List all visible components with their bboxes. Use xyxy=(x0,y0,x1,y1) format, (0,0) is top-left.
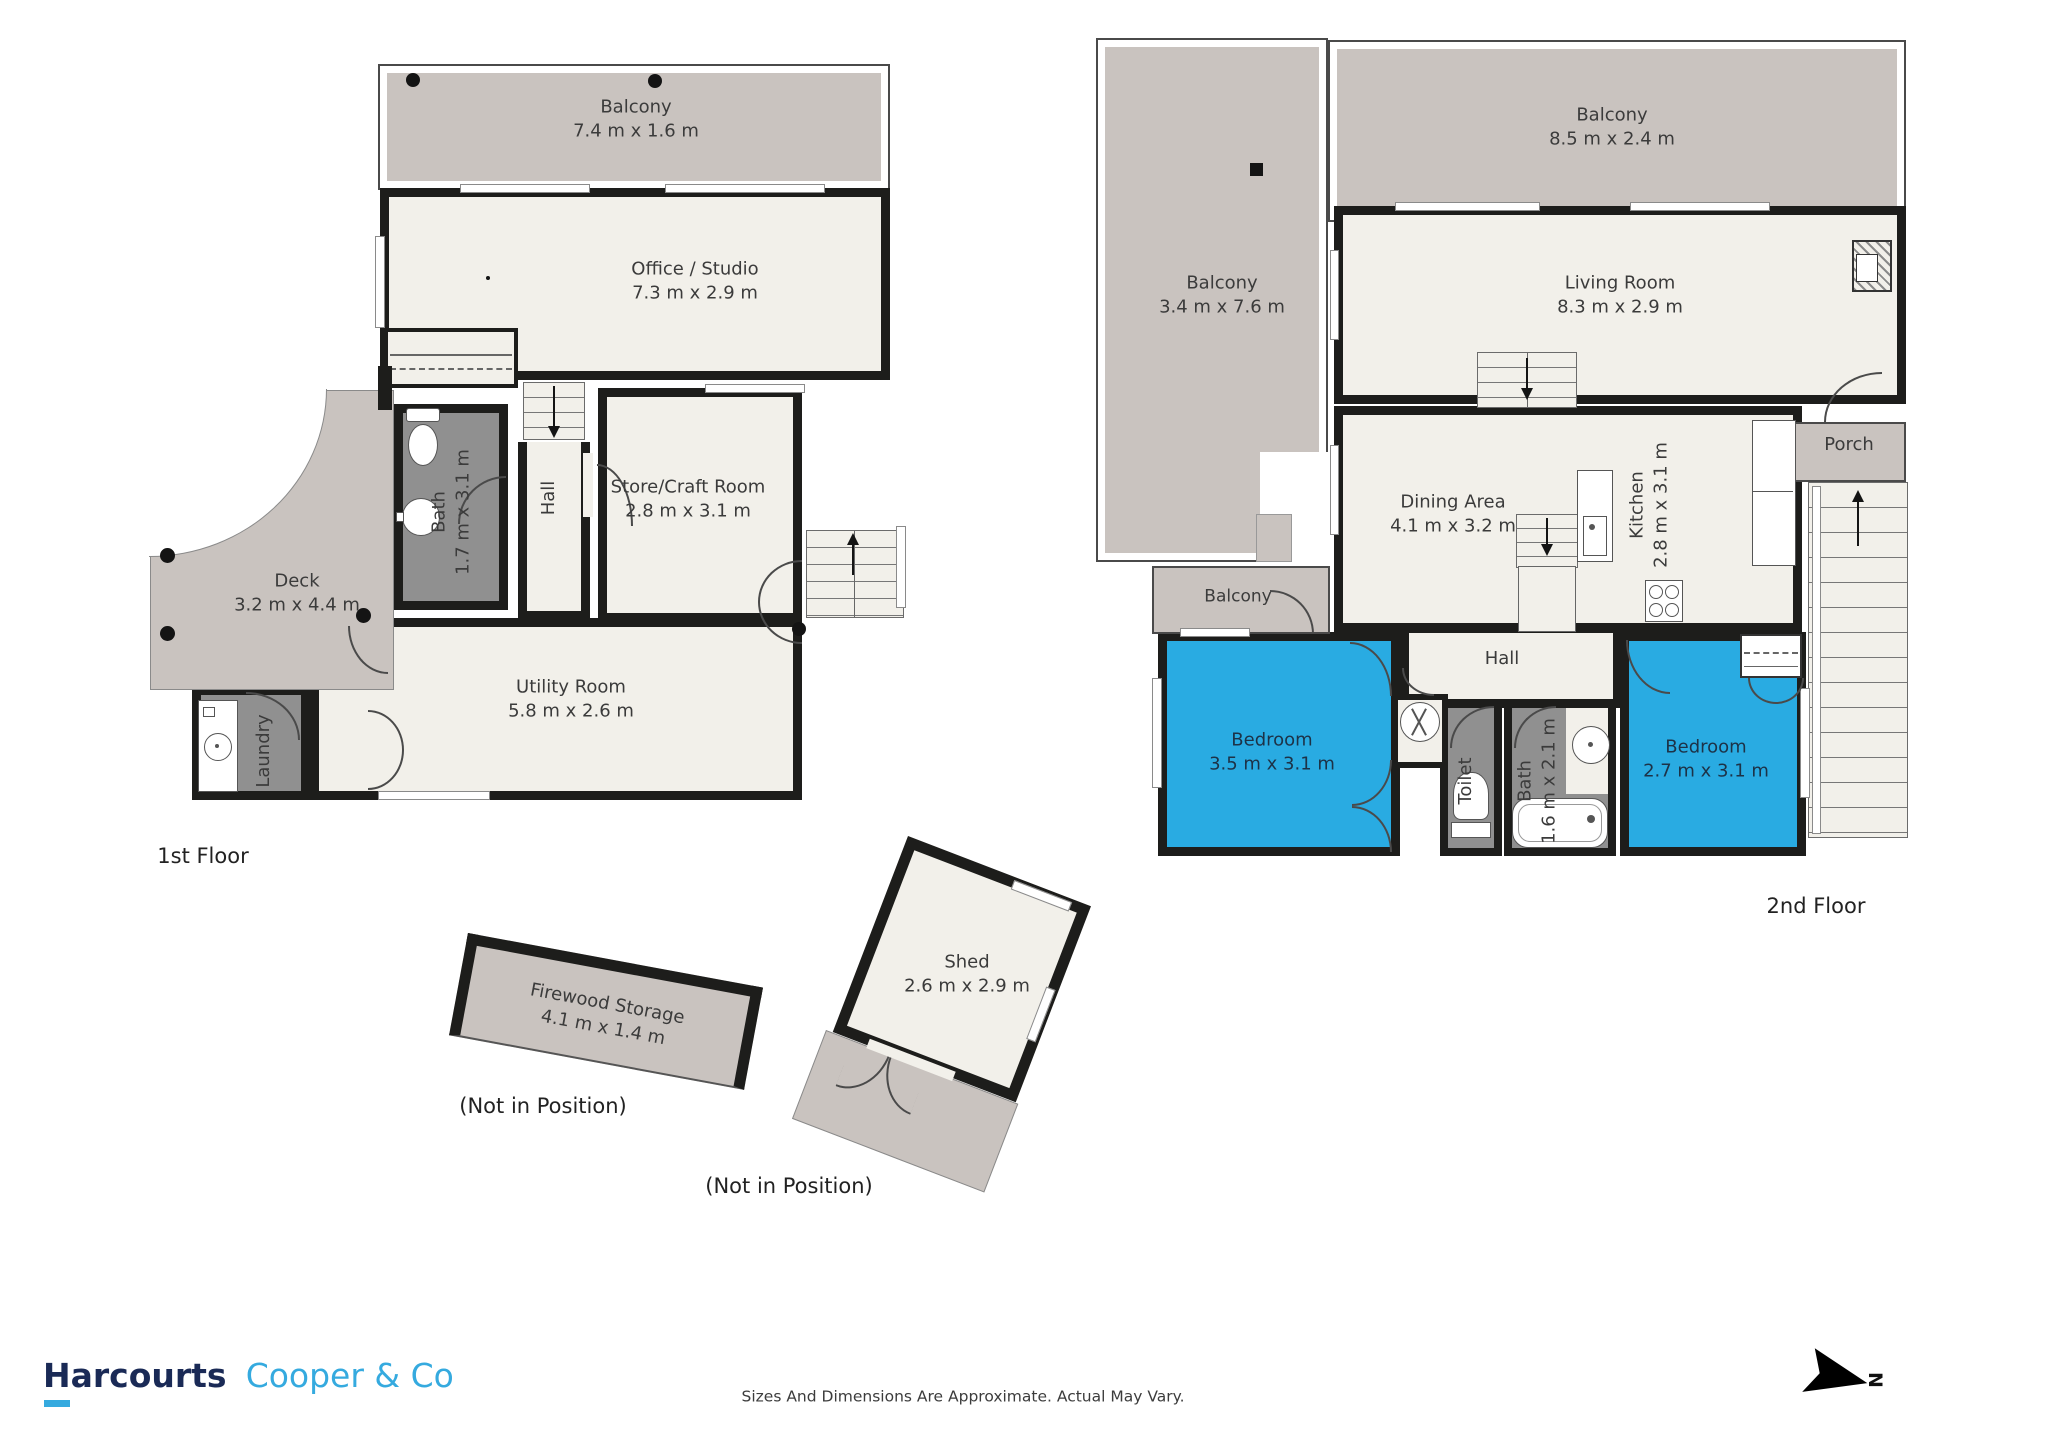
balcony-1f-label: Balcony7.4 m x 1.6 m xyxy=(573,96,699,145)
stairs-arrow-up-icon xyxy=(1852,490,1864,502)
deck-post-dot xyxy=(160,626,175,641)
toilet-tank-icon xyxy=(1451,822,1491,838)
store-craft-label: Store/Craft Room2.8 m x 3.1 m xyxy=(611,476,766,525)
stairs-arrow xyxy=(852,545,854,575)
window xyxy=(1330,250,1339,340)
room-firewood-storage: Firewood Storage4.1 m x 1.4 m xyxy=(449,933,763,1090)
stairs-arrow xyxy=(553,386,555,426)
room-hall-1f xyxy=(518,442,590,620)
brand-logo: Harcourts Cooper & Co xyxy=(43,1356,454,1395)
kitchen-sink-icon xyxy=(1583,516,1607,556)
stairs-arrow xyxy=(1857,502,1859,546)
balcony-small-label: Balcony xyxy=(1204,586,1271,609)
corner-dot xyxy=(792,622,806,636)
toilet-label: Toilet xyxy=(1454,757,1478,804)
firewood-note-label: (Not in Position) xyxy=(459,1092,626,1120)
sink-tap-icon xyxy=(396,512,404,522)
window xyxy=(1330,445,1339,535)
north-arrow-icon xyxy=(1798,1342,1868,1394)
first-floor-label: 1st Floor xyxy=(157,842,248,870)
kitchen-label: Kitchen2.8 m x 3.1 m xyxy=(1626,442,1675,568)
living-label: Living Room8.3 m x 2.9 m xyxy=(1557,272,1683,321)
wall-segment xyxy=(378,366,392,410)
hall-2f-label: Hall xyxy=(1485,647,1520,671)
shed-window xyxy=(1026,987,1055,1043)
stair-landing xyxy=(1518,566,1576,632)
floor-plan-canvas: Balcony7.4 m x 1.6 m Office / Studio7.3 … xyxy=(0,0,2048,1446)
window xyxy=(705,384,805,393)
porch-label: Porch xyxy=(1824,433,1874,457)
office-studio-label: Office / Studio7.3 m x 2.9 m xyxy=(631,258,758,307)
ceiling-dot xyxy=(486,276,490,280)
window xyxy=(1630,202,1770,211)
washing-machine-icon xyxy=(198,700,238,792)
laundry-label: Laundry xyxy=(252,714,276,787)
bedroom-2-label: Bedroom2.7 m x 3.1 m xyxy=(1643,736,1769,785)
fireplace-icon xyxy=(1852,240,1892,292)
disclaimer-text: Sizes And Dimensions Are Approximate. Ac… xyxy=(742,1387,1185,1408)
shed-label: Shed2.6 m x 2.9 m xyxy=(904,951,1030,1000)
stair-rail xyxy=(896,526,906,608)
window xyxy=(378,791,490,800)
firewood-storage-label: Firewood Storage4.1 m x 1.4 m xyxy=(524,978,687,1054)
window xyxy=(665,184,825,193)
utility-label: Utility Room5.8 m x 2.6 m xyxy=(508,676,634,725)
balcony-top-2f-label: Balcony8.5 m x 2.4 m xyxy=(1549,104,1675,153)
bath-1f-label: Bath1.7 m x 3.1 m xyxy=(428,449,477,575)
balcony-step xyxy=(1256,514,1292,562)
dining-label: Dining Area4.1 m x 3.2 m xyxy=(1390,491,1516,540)
hot-water-cylinder-icon xyxy=(1400,702,1440,742)
brand-underline xyxy=(44,1400,70,1407)
brand-primary-text: Harcourts xyxy=(43,1356,227,1395)
balcony-post-dot xyxy=(406,73,420,87)
wardrobe-icon xyxy=(1740,634,1802,678)
sink-tap-dot xyxy=(1589,524,1595,530)
closet xyxy=(384,328,518,388)
toilet-icon xyxy=(406,408,440,422)
door-opening xyxy=(583,453,593,517)
shed-note-label: (Not in Position) xyxy=(705,1172,872,1200)
window xyxy=(1800,688,1810,798)
brand-secondary-text: Cooper & Co xyxy=(246,1356,454,1395)
deck-post-dot xyxy=(160,548,175,563)
stairs-arrow xyxy=(1546,518,1548,546)
bedroom-1-label: Bedroom3.5 m x 3.1 m xyxy=(1209,729,1335,778)
hall-1f-label: Hall xyxy=(537,481,561,516)
deck-label: Deck3.2 m x 4.4 m xyxy=(234,570,360,619)
second-floor-label: 2nd Floor xyxy=(1767,892,1866,920)
kitchen-cabinets xyxy=(1752,420,1796,566)
north-label: N xyxy=(1861,1372,1887,1388)
stairs-arrow-down-icon xyxy=(1521,388,1533,400)
balcony-side-2f-label: Balcony3.4 m x 7.6 m xyxy=(1159,272,1285,321)
sink-drain-dot xyxy=(1588,742,1593,747)
stair-rail xyxy=(1812,486,1821,834)
window xyxy=(1180,628,1250,637)
stairs-arrow-down-icon xyxy=(548,426,560,438)
window xyxy=(460,184,590,193)
balcony-post-dot xyxy=(648,74,662,88)
stairs-arrow xyxy=(1526,358,1528,390)
stove-icon xyxy=(1645,580,1683,622)
balcony-post xyxy=(1250,163,1263,176)
window xyxy=(375,236,385,328)
shed-window xyxy=(1011,880,1072,912)
window xyxy=(1152,678,1162,788)
stairs-arrow-up-icon xyxy=(847,533,859,545)
window xyxy=(1395,202,1540,211)
bath-2f-label: Bath1.6 m x 2.1 m xyxy=(1514,718,1563,844)
stairs-arrow-down-icon xyxy=(1541,544,1553,556)
